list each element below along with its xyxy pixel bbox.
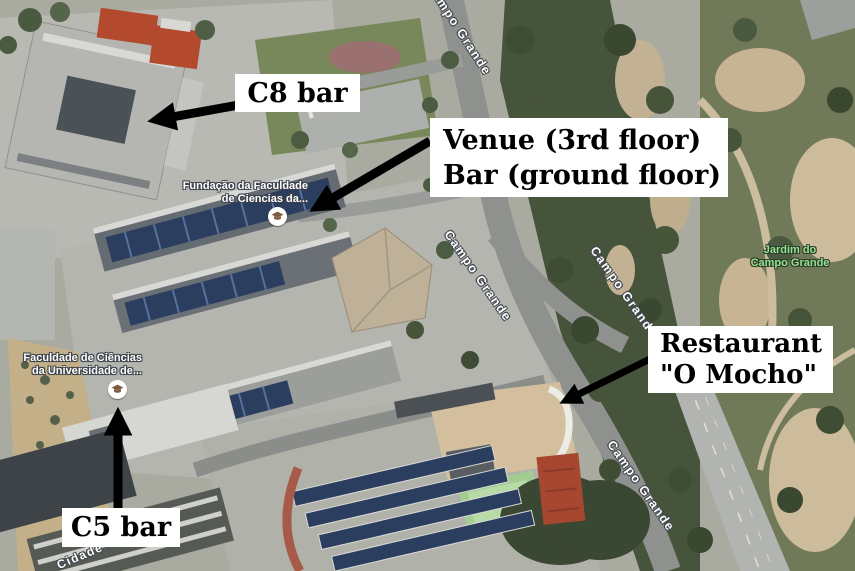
graduation-cap-icon[interactable] (108, 380, 127, 399)
annotation-venue: Venue (3rd floor) Bar (ground floor) (430, 118, 728, 197)
poi-label-line1: Fundação da Faculdade (150, 180, 308, 193)
poi-label-faculdade[interactable]: Faculdade de Ciências da Universidade de… (0, 352, 142, 378)
park-label-jardim-do-campo-grande: Jardim do Campo Grande (729, 244, 851, 270)
annotation-text: C5 bar (71, 512, 171, 543)
annotation-text: C8 bar (247, 78, 347, 109)
satellite-basemap (0, 0, 855, 571)
park-label-line2: Campo Grande (729, 257, 851, 270)
park-label-line1: Jardim do (729, 244, 851, 257)
annotation-line2: Bar (ground floor) (443, 158, 721, 193)
graduation-cap-icon[interactable] (268, 207, 287, 226)
annotation-line1: Restaurant (660, 329, 822, 360)
map-viewport[interactable]: Campo Grande Campo Grande Campo Grande C… (0, 0, 855, 571)
poi-label-line2: da Universidade de... (0, 365, 142, 378)
poi-label-line1: Faculdade de Ciências (0, 352, 142, 365)
annotation-line1: Venue (3rd floor) (443, 123, 701, 158)
annotation-restaurant-o-mocho: Restaurant "O Mocho" (648, 326, 833, 393)
poi-label-line2: de Ciencias da... (150, 193, 308, 206)
annotation-c5-bar: C5 bar (62, 508, 180, 547)
annotation-line2: "O Mocho" (660, 360, 817, 391)
poi-label-fundacao[interactable]: Fundação da Faculdade de Ciencias da... (150, 180, 308, 206)
annotation-c8-bar: C8 bar (235, 74, 360, 112)
